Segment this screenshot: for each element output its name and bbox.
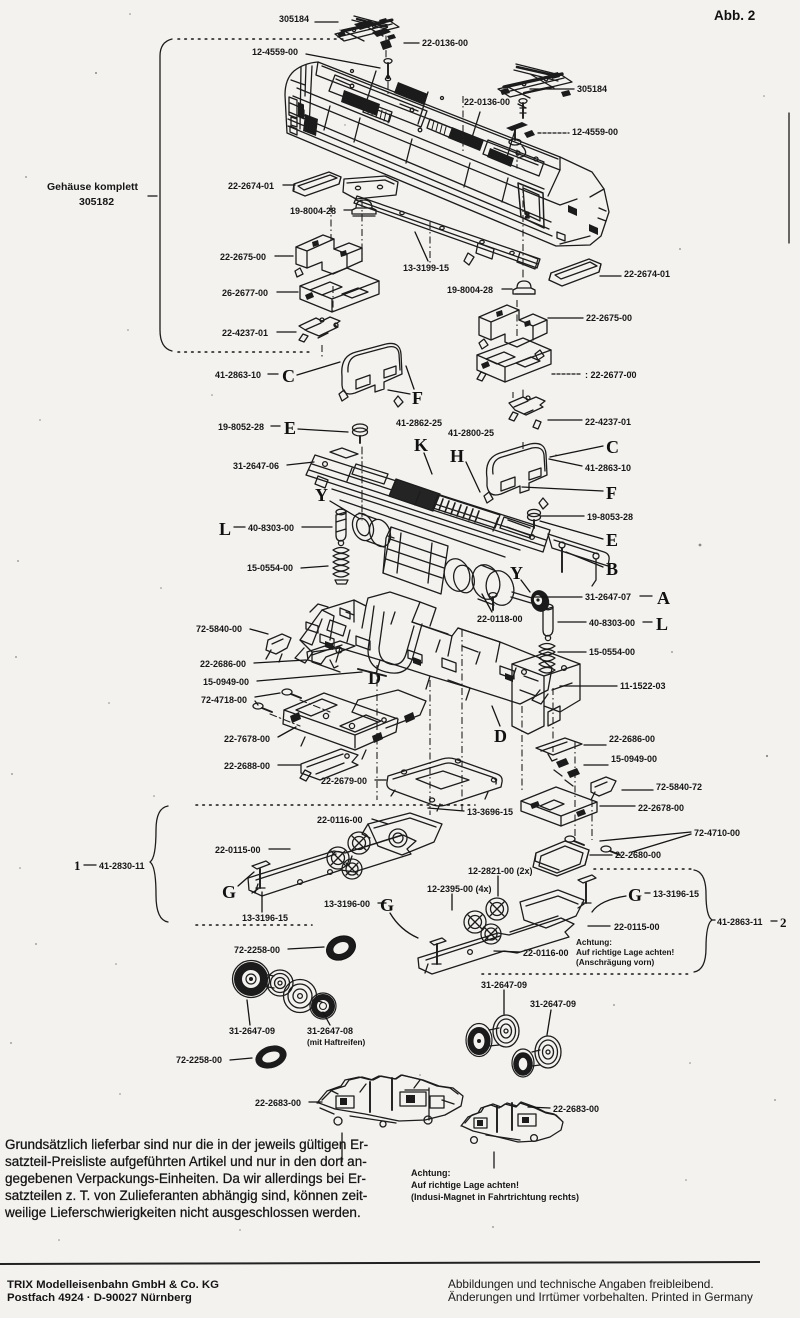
svg-text:(Anschrägung vorn): (Anschrägung vorn) <box>576 958 655 967</box>
svg-text:305184: 305184 <box>279 14 309 24</box>
svg-text:41-2863-11: 41-2863-11 <box>717 917 763 927</box>
svg-text:F: F <box>412 388 423 408</box>
svg-text:40-8303-00: 40-8303-00 <box>589 618 635 628</box>
svg-text:72-2258-00: 72-2258-00 <box>176 1055 222 1065</box>
svg-text:31-2647-09: 31-2647-09 <box>530 999 576 1009</box>
svg-text:Y: Y <box>315 485 328 505</box>
svg-text:19-8004-28: 19-8004-28 <box>447 285 493 295</box>
svg-text:31-2647-06: 31-2647-06 <box>233 461 279 471</box>
svg-text:G: G <box>628 885 642 905</box>
svg-text:2: 2 <box>780 915 787 930</box>
svg-text:C: C <box>282 366 295 386</box>
svg-text:22-0115-00: 22-0115-00 <box>614 922 660 932</box>
svg-text:22-2686-00: 22-2686-00 <box>200 659 246 669</box>
svg-text:K: K <box>414 435 428 455</box>
svg-text:12-4559-00: 12-4559-00 <box>252 47 298 57</box>
svg-text:D: D <box>494 726 507 746</box>
svg-text:13-3196-15: 13-3196-15 <box>653 889 699 899</box>
svg-text:weilige Lieferschwierigkeiten: weilige Lieferschwierigkeiten nicht ausg… <box>4 1205 361 1220</box>
svg-text:F: F <box>606 483 617 503</box>
svg-text:15-0949-00: 15-0949-00 <box>611 754 657 764</box>
svg-text:22-0116-00: 22-0116-00 <box>317 815 363 825</box>
svg-text:satzteilen z. T. von Zuliefera: satzteilen z. T. von Zulieferanten abhän… <box>5 1188 367 1203</box>
svg-text:22-0136-00: 22-0136-00 <box>422 38 468 48</box>
svg-text:22-4237-01: 22-4237-01 <box>585 417 631 427</box>
svg-text:13-3196-15: 13-3196-15 <box>242 913 288 923</box>
svg-text:Gehäuse komplett: Gehäuse komplett <box>47 181 139 193</box>
svg-text:22-0116-00: 22-0116-00 <box>523 948 569 958</box>
svg-text:22-2675-00: 22-2675-00 <box>586 313 632 323</box>
svg-text:C: C <box>606 437 619 457</box>
svg-text:11-1522-03: 11-1522-03 <box>620 681 666 691</box>
svg-text:satzteil-Preisliste aufgeführt: satzteil-Preisliste aufgeführten Artikel… <box>5 1154 367 1169</box>
svg-text:G: G <box>222 882 236 902</box>
svg-text:305184: 305184 <box>577 84 607 94</box>
svg-text:41-2800-25: 41-2800-25 <box>448 428 494 438</box>
svg-text:72-4718-00: 72-4718-00 <box>201 695 247 705</box>
svg-text:72-2258-00: 72-2258-00 <box>234 945 280 955</box>
svg-text:22-0118-00: 22-0118-00 <box>477 614 523 624</box>
svg-text:D: D <box>368 668 381 688</box>
svg-text:41-2863-10: 41-2863-10 <box>215 370 261 380</box>
svg-text:12-2821-00 (2x): 12-2821-00 (2x) <box>468 866 533 876</box>
svg-text:15-0554-00: 15-0554-00 <box>589 647 635 657</box>
svg-text:19-8052-28: 19-8052-28 <box>218 422 264 432</box>
svg-text:72-5840-72: 72-5840-72 <box>656 782 702 792</box>
svg-text:Achtung:: Achtung: <box>576 938 612 947</box>
svg-text:Auf richtige Lage achten!: Auf richtige Lage achten! <box>411 1180 519 1190</box>
svg-text:40-8303-00: 40-8303-00 <box>248 523 294 533</box>
svg-text:: 22-2677-00: : 22-2677-00 <box>585 370 637 380</box>
svg-text:H: H <box>450 446 464 466</box>
svg-text:41-2862-25: 41-2862-25 <box>396 418 442 428</box>
svg-text:22-2679-00: 22-2679-00 <box>321 776 367 786</box>
svg-text:13-3696-15: 13-3696-15 <box>467 807 513 817</box>
svg-text:12-4559-00: 12-4559-00 <box>572 127 618 137</box>
svg-text:1: 1 <box>74 858 81 873</box>
svg-text:31-2647-09: 31-2647-09 <box>481 980 527 990</box>
svg-text:72-4710-00: 72-4710-00 <box>694 828 740 838</box>
svg-text:E: E <box>284 418 296 438</box>
svg-text:G: G <box>380 895 394 915</box>
svg-text:19-8053-28: 19-8053-28 <box>587 512 633 522</box>
svg-text:22-0115-00: 22-0115-00 <box>215 845 261 855</box>
svg-text:26-2677-00: 26-2677-00 <box>222 288 268 298</box>
svg-text:22-2680-00: 22-2680-00 <box>615 850 661 860</box>
svg-text:22-2683-00: 22-2683-00 <box>255 1098 301 1108</box>
svg-text:22-2686-00: 22-2686-00 <box>609 734 655 744</box>
svg-text:22-2675-00: 22-2675-00 <box>220 252 266 262</box>
svg-text:72-5840-00: 72-5840-00 <box>196 624 242 634</box>
svg-text:15-0949-00: 15-0949-00 <box>203 677 249 687</box>
svg-text:22-2688-00: 22-2688-00 <box>224 761 270 771</box>
svg-text:gegebenen Verpackungs-Einheite: gegebenen Verpackungs-Einheiten. Da wir … <box>5 1171 366 1186</box>
svg-text:(mit Haftreifen): (mit Haftreifen) <box>307 1038 365 1047</box>
svg-text:B: B <box>606 559 618 579</box>
svg-text:305182: 305182 <box>79 196 114 208</box>
svg-text:19-8004-28: 19-8004-28 <box>290 206 336 216</box>
svg-text:A: A <box>657 588 670 608</box>
svg-text:Abbildungen und technische Ang: Abbildungen und technische Angaben freib… <box>448 1277 714 1291</box>
svg-text:22-7678-00: 22-7678-00 <box>224 734 270 744</box>
svg-text:22-2674-01: 22-2674-01 <box>624 269 670 279</box>
svg-text:31-2647-07: 31-2647-07 <box>585 592 631 602</box>
svg-text:E: E <box>606 530 618 550</box>
svg-text:22-2678-00: 22-2678-00 <box>638 803 684 813</box>
svg-text:22-4237-01: 22-4237-01 <box>222 328 268 338</box>
svg-text:15-0554-00: 15-0554-00 <box>247 563 293 573</box>
svg-text:Auf richtige Lage achten!: Auf richtige Lage achten! <box>576 948 674 957</box>
svg-text:31-2647-09: 31-2647-09 <box>229 1026 275 1036</box>
svg-text:41-2830-11: 41-2830-11 <box>99 861 145 871</box>
svg-text:Änderungen und Irrtümer vorbeh: Änderungen und Irrtümer vorbehalten. Pri… <box>448 1290 753 1304</box>
svg-text:13-3199-15: 13-3199-15 <box>403 263 449 273</box>
svg-text:2: 2 <box>525 211 530 220</box>
svg-text:41-2863-10: 41-2863-10 <box>585 463 631 473</box>
svg-text:Postfach 4924 · D-90027 Nürnbe: Postfach 4924 · D-90027 Nürnberg <box>7 1292 192 1304</box>
svg-text:TRIX Modelleisenbahn GmbH & Co: TRIX Modelleisenbahn GmbH & Co. KG <box>7 1279 219 1291</box>
svg-text:12-2395-00 (4x): 12-2395-00 (4x) <box>427 884 492 894</box>
svg-text:Grundsätzlich lieferbar sind n: Grundsätzlich lieferbar sind nur die in … <box>5 1137 368 1152</box>
svg-text:Achtung:: Achtung: <box>411 1168 451 1178</box>
svg-text:L: L <box>219 519 231 539</box>
svg-text:Abb. 2: Abb. 2 <box>714 8 755 23</box>
svg-text:(Indusi-Magnet in Fahrtrichtun: (Indusi-Magnet in Fahrtrichtung rechts) <box>411 1192 579 1202</box>
svg-text:22-2683-00: 22-2683-00 <box>553 1104 599 1114</box>
svg-text:L: L <box>656 614 668 634</box>
svg-text:31-2647-08: 31-2647-08 <box>307 1026 353 1036</box>
svg-text:22-0136-00: 22-0136-00 <box>464 97 510 107</box>
svg-text:22-2674-01: 22-2674-01 <box>228 181 274 191</box>
svg-text:13-3196-00: 13-3196-00 <box>324 899 370 909</box>
